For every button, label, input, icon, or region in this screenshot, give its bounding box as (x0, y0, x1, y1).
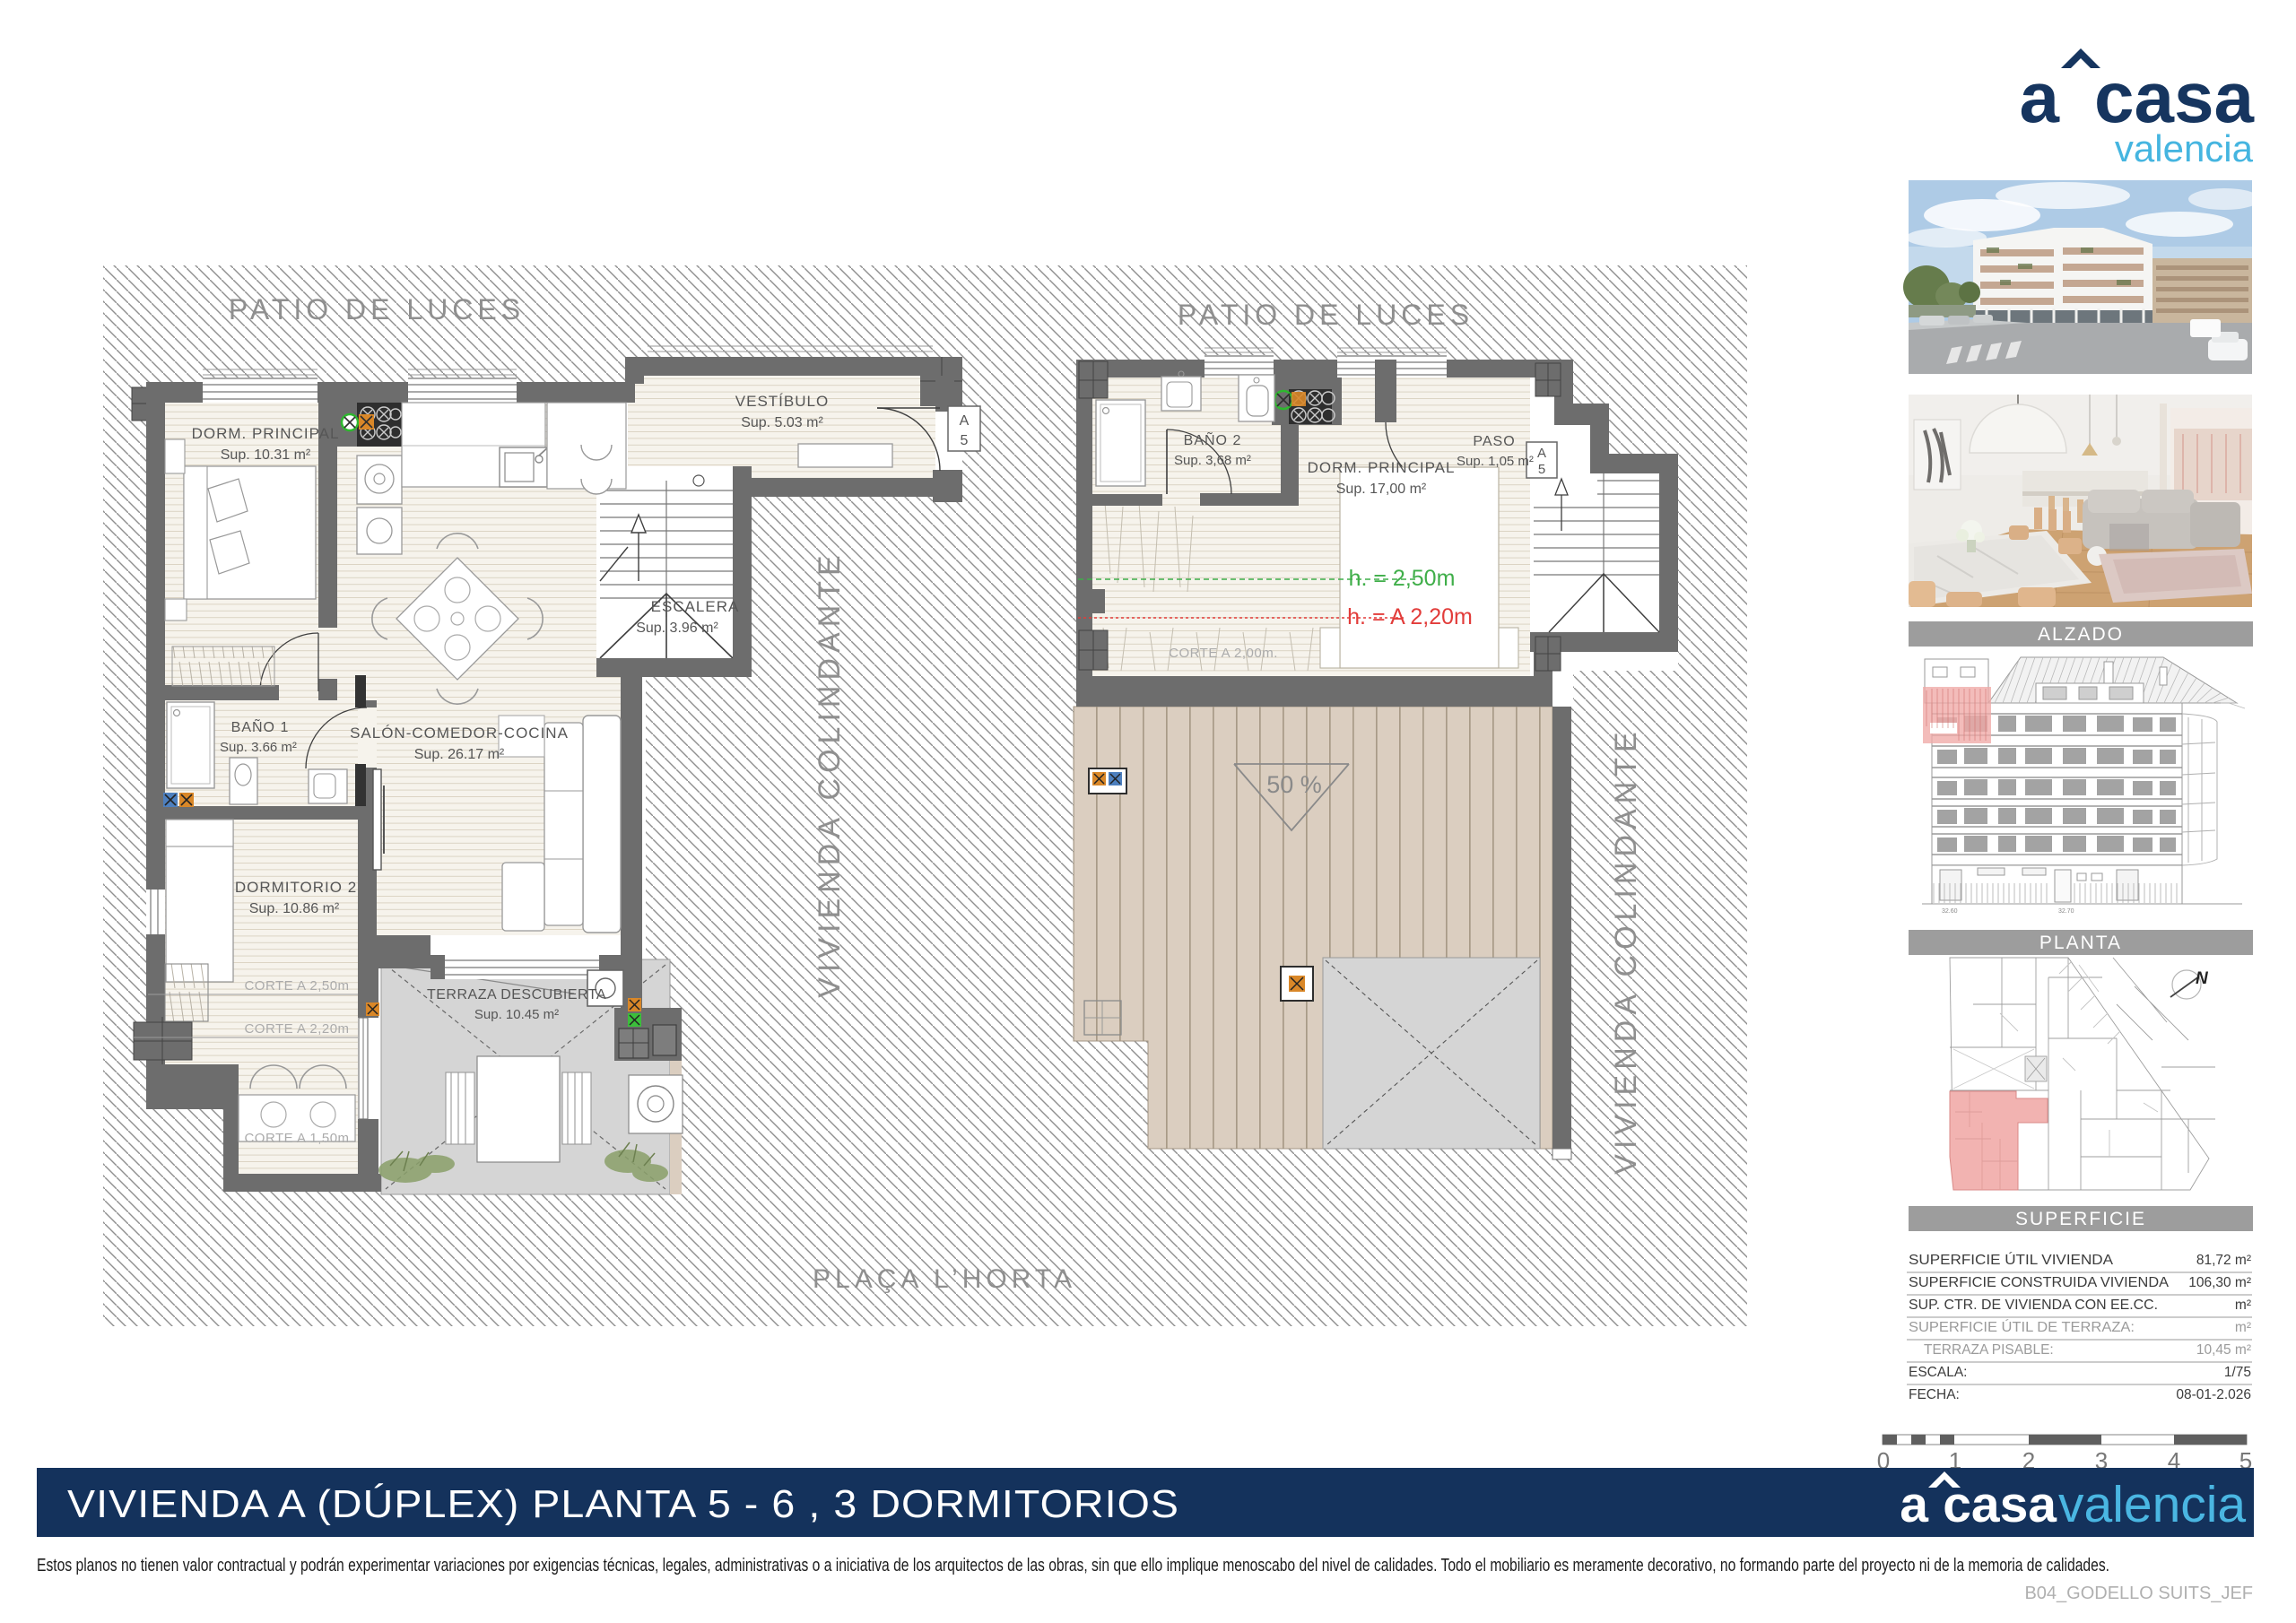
svg-text:Sup. 1,05 m²: Sup. 1,05 m² (1457, 454, 1534, 469)
svg-text:Sup. 17,00 m²: Sup. 17,00 m² (1336, 482, 1427, 497)
svg-text:CORTE A 2,50m: CORTE A 2,50m (244, 978, 349, 994)
svg-text:valencia: valencia (2058, 1476, 2246, 1533)
svg-text:CORTE A 1,50m: CORTE A 1,50m (244, 1131, 349, 1146)
svg-text:32.70: 32.70 (2058, 908, 2074, 915)
svg-text:SUPERFICIE: SUPERFICIE (2015, 1209, 2146, 1229)
svg-text:casa: casa (2094, 57, 2254, 137)
svg-text:DORM. PRINCIPAL: DORM. PRINCIPAL (1308, 459, 1456, 476)
svg-text:5: 5 (1538, 462, 1545, 477)
svg-text:ALZADO: ALZADO (2038, 624, 2124, 645)
svg-text:50 %: 50 % (1266, 771, 1322, 798)
svg-text:ESCALA:: ESCALA: (1909, 1365, 1967, 1380)
svg-text:BAÑO 2: BAÑO 2 (1184, 430, 1242, 448)
svg-text:VESTÍBULO: VESTÍBULO (735, 393, 829, 410)
svg-text:CORTE A 2,20m: CORTE A 2,20m (244, 1021, 349, 1037)
svg-text:PASO: PASO (1473, 434, 1515, 449)
svg-text:5: 5 (961, 433, 969, 448)
svg-text:VIVIENDA COLINDANTE: VIVIENDA COLINDANTE (1609, 726, 1643, 1174)
svg-text:VIVIENDA A (DÚPLEX) PLANTA 5: VIVIENDA A (DÚPLEX) PLANTA 5 - 6 , 3 DOR… (67, 1482, 1179, 1526)
svg-text:SUPERFICIE ÚTIL DE TERRAZA:: SUPERFICIE ÚTIL DE TERRAZA: (1909, 1320, 2135, 1335)
svg-text:Estos planos no tienen valor c: Estos planos no tienen valor contractual… (37, 1556, 2109, 1575)
svg-text:Sup. 26.17 m²: Sup. 26.17 m² (414, 747, 505, 762)
svg-text:VIVIENDA COLINDANTE: VIVIENDA COLINDANTE (813, 550, 847, 997)
svg-text:BAÑO 1: BAÑO 1 (231, 717, 290, 735)
svg-text:DORMITORIO 2: DORMITORIO 2 (235, 879, 357, 896)
svg-text:A: A (960, 413, 970, 429)
svg-text:SUPERFICIE ÚTIL VIVIENDA: SUPERFICIE ÚTIL VIVIENDA (1909, 1253, 2114, 1268)
svg-text:FECHA:: FECHA: (1909, 1387, 1960, 1402)
svg-text:SUPERFICIE CONSTRUIDA VIVIENDA: SUPERFICIE CONSTRUIDA VIVIENDA (1909, 1275, 2170, 1290)
svg-text:106,30 m²: 106,30 m² (2188, 1275, 2251, 1290)
svg-text:valencia: valencia (2115, 127, 2254, 169)
svg-text:B04_GODELLO SUITS_JEF: B04_GODELLO SUITS_JEF (2024, 1584, 2253, 1603)
svg-text:PLANTA: PLANTA (2039, 933, 2122, 953)
svg-text:casa: casa (1943, 1476, 2057, 1533)
svg-text:PLAÇA L’HORTA: PLAÇA L’HORTA (813, 1264, 1076, 1294)
svg-text:Sup. 10.45 m²: Sup. 10.45 m² (474, 1007, 559, 1022)
svg-text:m²: m² (2235, 1298, 2251, 1313)
svg-text:m²: m² (2235, 1320, 2251, 1335)
svg-text:Sup. 5.03 m²: Sup. 5.03 m² (741, 415, 823, 430)
svg-text:1/75: 1/75 (2224, 1365, 2251, 1380)
svg-text:08-01-2.026: 08-01-2.026 (2176, 1387, 2251, 1402)
svg-text:TERRAZA DESCUBIERTA: TERRAZA DESCUBIERTA (427, 987, 606, 1002)
svg-text:PATIO DE LUCES: PATIO DE LUCES (229, 293, 525, 325)
svg-text:CORTE A 2,00m.: CORTE A 2,00m. (1169, 646, 1278, 661)
svg-text:h. = 2,50m: h. = 2,50m (1349, 566, 1456, 591)
svg-text:81,72 m²: 81,72 m² (2196, 1253, 2251, 1268)
svg-text:PATIO DE LUCES: PATIO DE LUCES (1178, 299, 1474, 331)
svg-text:Sup. 10.86 m²: Sup. 10.86 m² (249, 901, 340, 916)
svg-text:Sup. 3.66 m²: Sup. 3.66 m² (220, 740, 297, 755)
svg-text:a: a (1900, 1476, 1929, 1533)
svg-text:h. = A 2,20m: h. = A 2,20m (1347, 604, 1473, 629)
svg-text:Sup. 3.96 m²: Sup. 3.96 m² (636, 621, 718, 636)
svg-text:ESCALERA: ESCALERA (651, 598, 740, 615)
svg-text:Sup. 10.31 m²: Sup. 10.31 m² (221, 447, 311, 463)
svg-text:a: a (2020, 57, 2060, 137)
svg-text:DORM. PRINCIPAL: DORM. PRINCIPAL (192, 425, 340, 442)
svg-text:SALÓN-COMEDOR-COCINA: SALÓN-COMEDOR-COCINA (350, 725, 569, 742)
svg-text:A: A (1537, 446, 1546, 461)
svg-text:10,45 m²: 10,45 m² (2196, 1342, 2251, 1358)
svg-text:TERRAZA PISABLE:: TERRAZA PISABLE: (1924, 1342, 2054, 1358)
svg-text:N: N (2196, 969, 2209, 988)
svg-text:SUP. CTR. DE VIVIENDA CON EE.C: SUP. CTR. DE VIVIENDA CON EE.CC. (1909, 1298, 2158, 1313)
svg-text:32.60: 32.60 (1942, 908, 1958, 915)
svg-text:Sup. 3,68 m²: Sup. 3,68 m² (1174, 453, 1251, 468)
